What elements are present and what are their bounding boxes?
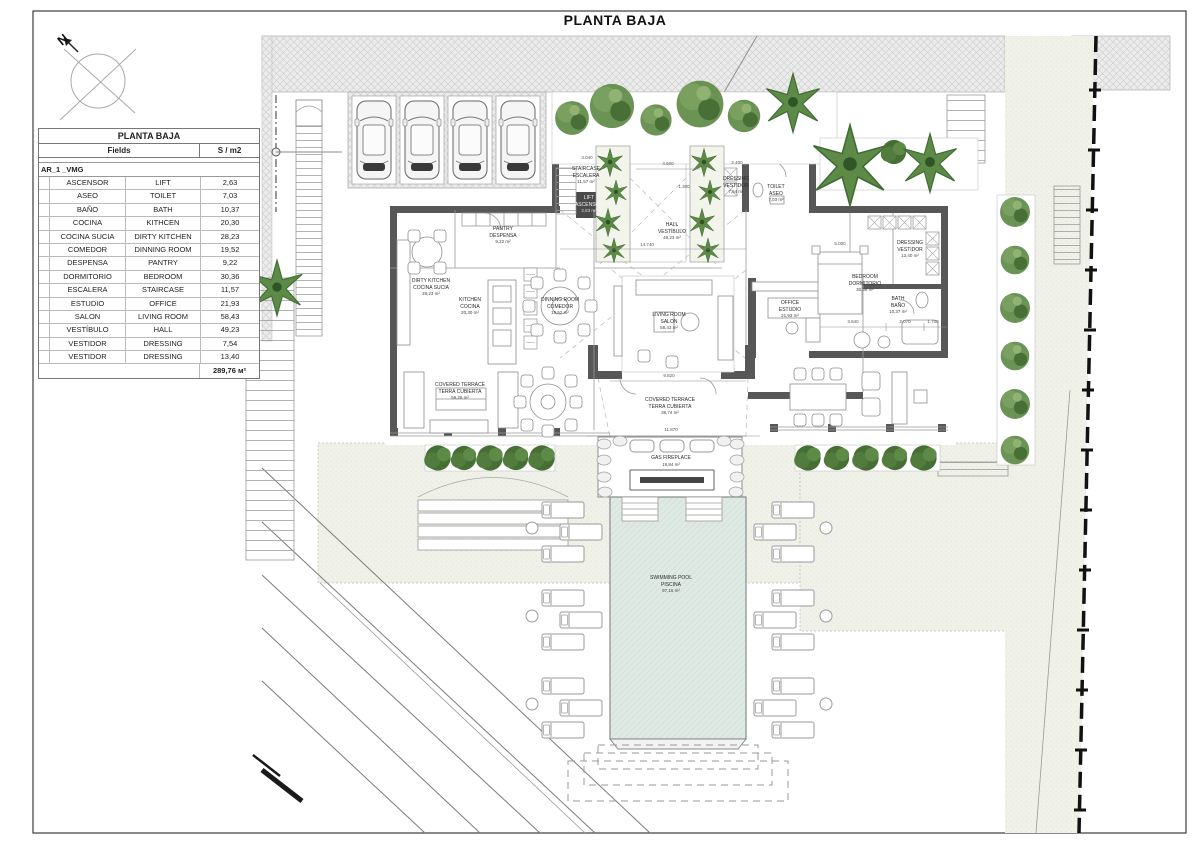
dimension-label: 11.870	[664, 427, 677, 432]
dimension-label: 1.700	[927, 319, 938, 324]
room-label-bedroom: BEDROOMDORMITORIO30,36 m²	[849, 274, 881, 293]
table-row: SALONLIVING ROOM58,43	[39, 311, 259, 324]
table-row: BAÑOBATH10,37	[39, 204, 259, 217]
total-area: 289,76 м²	[200, 364, 259, 378]
room-label-dining: DINNING ROOMCOMEDOR19,52 m²	[541, 297, 579, 316]
dimension-label: 1.300	[678, 184, 689, 189]
table-row: DESPENSAPANTRY9,22	[39, 257, 259, 270]
label-swimming-pool: SWIMMING POOLPISCINA97,16 m²	[650, 575, 692, 594]
label-covered-terrace-center: COVERED TERRACETERRA CUBIERTA38,74 m²	[645, 397, 695, 416]
dimension-label: 4.040	[581, 155, 592, 160]
page-title: PLANTA BAJA	[470, 12, 760, 28]
table-row: ASCENSORLIFT2,63	[39, 177, 259, 190]
dimension-label: 5.000	[834, 241, 845, 246]
col-area: S / m2	[200, 144, 259, 157]
table-row: COCINA SUCIADIRTY KITCHEN28,23	[39, 231, 259, 244]
col-fields: Fields	[39, 144, 200, 157]
dimension-label: 14.740	[640, 242, 654, 247]
table-row: COCINAKITHCEN20,30	[39, 217, 259, 230]
room-label-kitchen: KITCHENCOCINA20,30 m²	[459, 297, 481, 316]
room-label-living: LIVING ROOMSALON58,43 m²	[652, 312, 685, 331]
table-row: COMEDORDINNING ROOM19,52	[39, 244, 259, 257]
room-label-lift: LIFTASCENSOR2,63 m²	[575, 195, 603, 214]
room-label-office: OFFICEESTUDIO21,93 m²	[779, 300, 801, 319]
area-table: PLANTA BAJA Fields S / m2 AR_1 _VMG ASCE…	[38, 128, 260, 379]
drawing-sheet: { "title": "PLANTA BAJA", "compass": { "…	[0, 0, 1200, 848]
area-table-title: PLANTA BAJA	[39, 129, 259, 144]
dimension-label: 4.500	[662, 161, 673, 166]
parking-garage	[348, 92, 546, 188]
table-row: ASEOTOILET7,03	[39, 190, 259, 203]
room-label-pantry: PANTRYDESPENSA9,22 m²	[489, 226, 516, 245]
table-row: DORMITORIOBEDROOM30,36	[39, 271, 259, 284]
room-label-hall: HALLVESTÍBULO49,23 m²	[658, 222, 686, 241]
label-covered-terrace-left: COVERED TERRACETERRA CUBIERTA59,26 m²	[435, 382, 485, 401]
dimension-label: 2.070	[899, 319, 910, 324]
dimension-label: 2.400	[731, 160, 742, 165]
room-label-dirty-kitchen: DIRTY KITCHENCOCINA SUCIA28,23 m²	[412, 278, 450, 297]
room-label-toilet: TOILETASEO7,03 m²	[767, 184, 784, 203]
label-gas-fireplace: GAS FIREPLACE19,84 m²	[651, 455, 691, 467]
dimension-label: 3.640	[847, 319, 858, 324]
room-label-bath: BATHBAÑO10,37 m²	[889, 296, 907, 315]
table-row: ESCALERASTAIRCASE11,57	[39, 284, 259, 297]
room-label-dressing-1: DRESSINGVESTIDOR7,54 m²	[723, 176, 749, 195]
north-compass	[60, 38, 136, 120]
table-row: ESTUDIOOFFICE21,93	[39, 298, 259, 311]
table-total-row: 289,76 м²	[39, 364, 259, 378]
table-row: VESTIDORDRESSING7,54	[39, 338, 259, 351]
table-group-label: AR_1 _VMG	[39, 163, 259, 177]
area-table-header: Fields S / m2	[39, 144, 259, 158]
room-label-staircase: STAIRCASEESCALERA11,57 m²	[572, 166, 600, 185]
table-row: VESTÍBULOHALL49,23	[39, 324, 259, 337]
table-row: VESTIDORDRESSING13,40	[39, 351, 259, 364]
room-label-dressing-2: DRESSINGVESTIDOR13,40 m²	[897, 240, 923, 259]
dimension-label: 9.820	[663, 373, 674, 378]
